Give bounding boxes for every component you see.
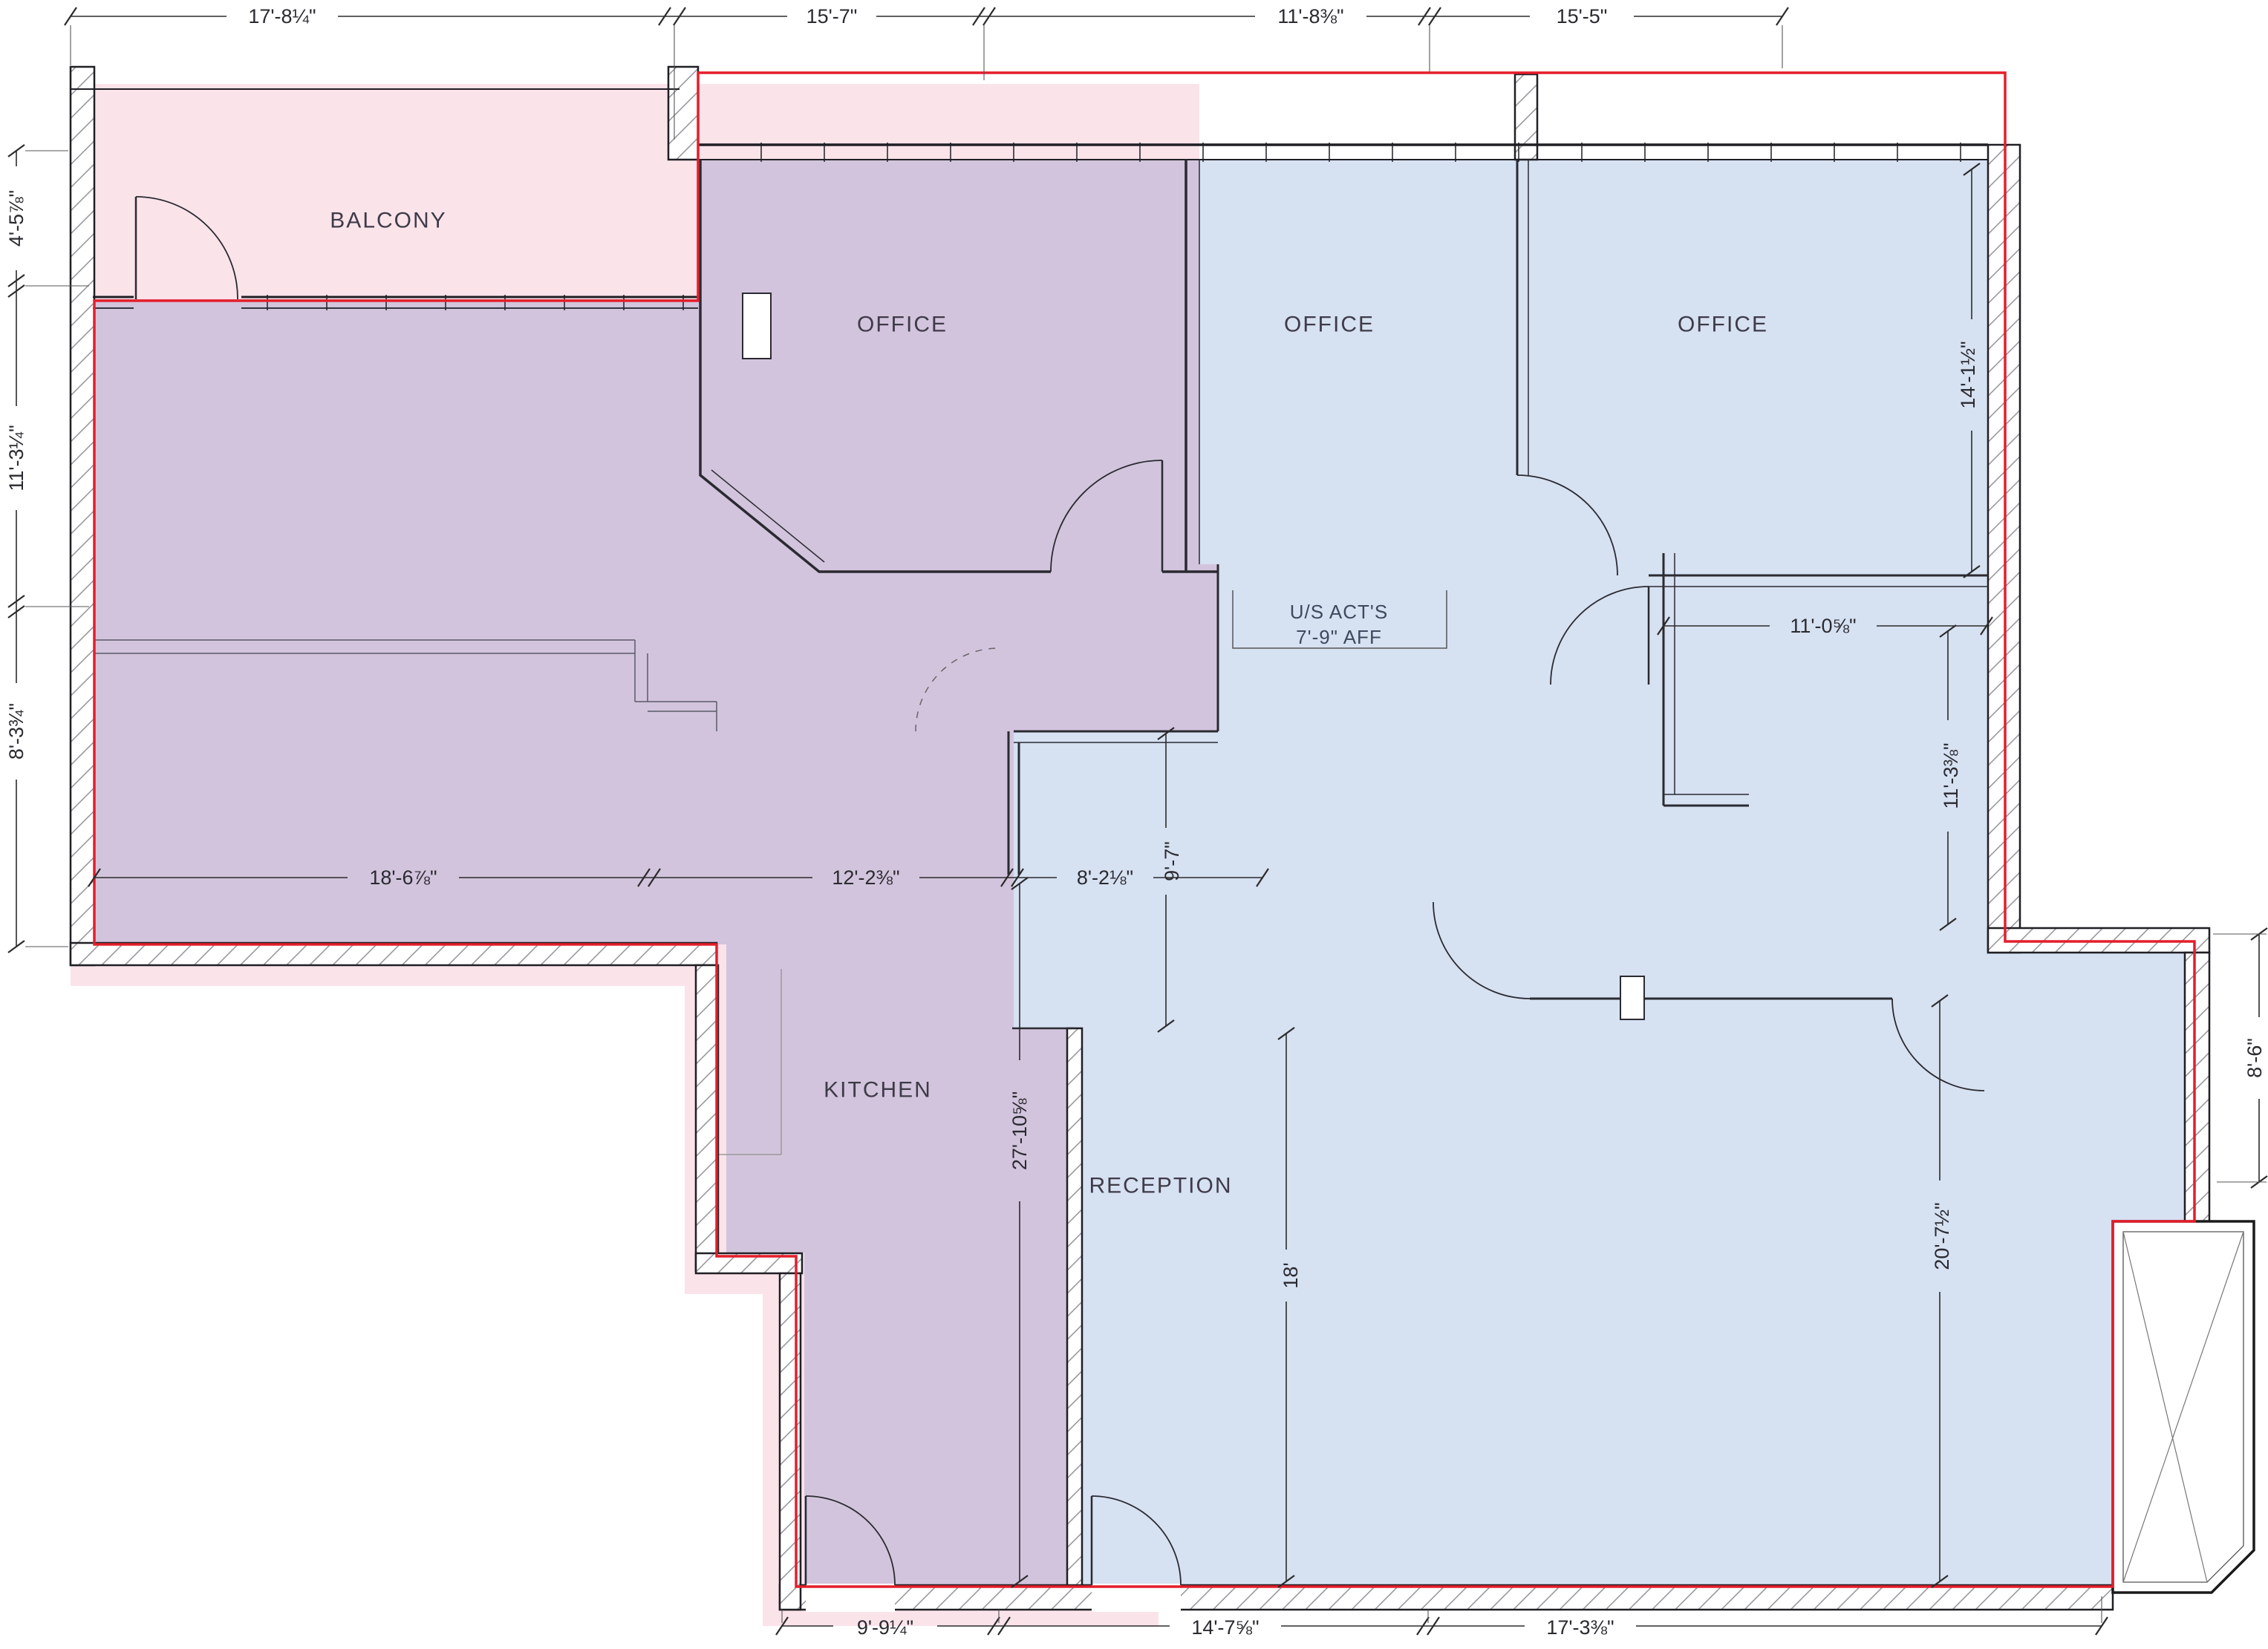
shaft-box xyxy=(2113,1221,2254,1593)
room-label-office-c: OFFICE xyxy=(1678,313,1768,337)
dim-14-1: 14'-1½" xyxy=(1957,341,1979,408)
dim-top-3: 11'-8⅜" xyxy=(1277,5,1343,27)
floor-plan-page: 17'-8¼" 15'-7" 11'-8⅜" 15'-5" 4'-5⅞" 11'… xyxy=(0,0,2268,1649)
dim-mid-2: 12'-2⅜" xyxy=(832,866,899,889)
dim-27-10: 27'-10⅝" xyxy=(1008,1091,1031,1170)
dim-act-width: 11'-0⅝" xyxy=(1790,615,1856,637)
dim-9-7: 9'-7" xyxy=(1161,841,1183,881)
wall-kitchen-left-lower xyxy=(780,1273,801,1610)
floor-plan-drawing: 17'-8¼" 15'-7" 11'-8⅜" 15'-5" 4'-5⅞" 11'… xyxy=(0,0,2268,1649)
dim-bottom-1: 9'-9¼" xyxy=(857,1616,913,1639)
dim-bottom-2: 14'-7⅝" xyxy=(1191,1616,1259,1639)
room-label-office-a: OFFICE xyxy=(857,313,948,337)
door-jamb xyxy=(743,293,771,359)
dim-mid-1: 18'-6⅞" xyxy=(369,866,437,889)
wall-leftroom-bottom xyxy=(71,943,717,965)
zone-fills xyxy=(71,84,2185,1605)
dim-20-7: 20'-7½" xyxy=(1931,1202,1953,1270)
wall-balcony-column xyxy=(668,67,698,160)
wall-bottom xyxy=(780,1585,2113,1610)
room-label-kitchen: KITCHEN xyxy=(824,1078,932,1103)
wall-left xyxy=(71,67,94,965)
wall-right-lower xyxy=(2185,953,2209,1221)
room-label-balcony: BALCONY xyxy=(330,209,446,233)
dim-left-3: 8'-3¾" xyxy=(5,703,27,760)
note-line-2: 7'-9" AFF xyxy=(1296,626,1382,648)
dim-bottom-3: 17'-3⅜" xyxy=(1546,1616,1614,1639)
dim-8-6: 8'-6" xyxy=(2243,1038,2266,1078)
dim-mid-3: 8'-2⅛" xyxy=(1077,866,1133,889)
room-label-office-b: OFFICE xyxy=(1284,313,1375,337)
dim-left-1: 4'-5⅞" xyxy=(5,190,27,246)
room-label-reception: RECEPTION xyxy=(1089,1174,1232,1198)
dim-11-3: 11'-3⅜" xyxy=(1940,742,1962,809)
door-jamb xyxy=(1620,976,1644,1019)
wall-kitchen-left-upper xyxy=(696,965,718,1271)
wall-kitchen-reception xyxy=(1067,1028,1082,1585)
dim-top-1: 17'-8¼" xyxy=(248,5,316,27)
dim-18: 18' xyxy=(1280,1262,1302,1288)
dim-top-2: 15'-7" xyxy=(806,5,858,27)
note-line-1: U/S ACT'S xyxy=(1290,601,1388,623)
dim-top-4: 15'-5" xyxy=(1557,5,1608,27)
dim-left-2: 11'-3¼" xyxy=(5,425,27,491)
